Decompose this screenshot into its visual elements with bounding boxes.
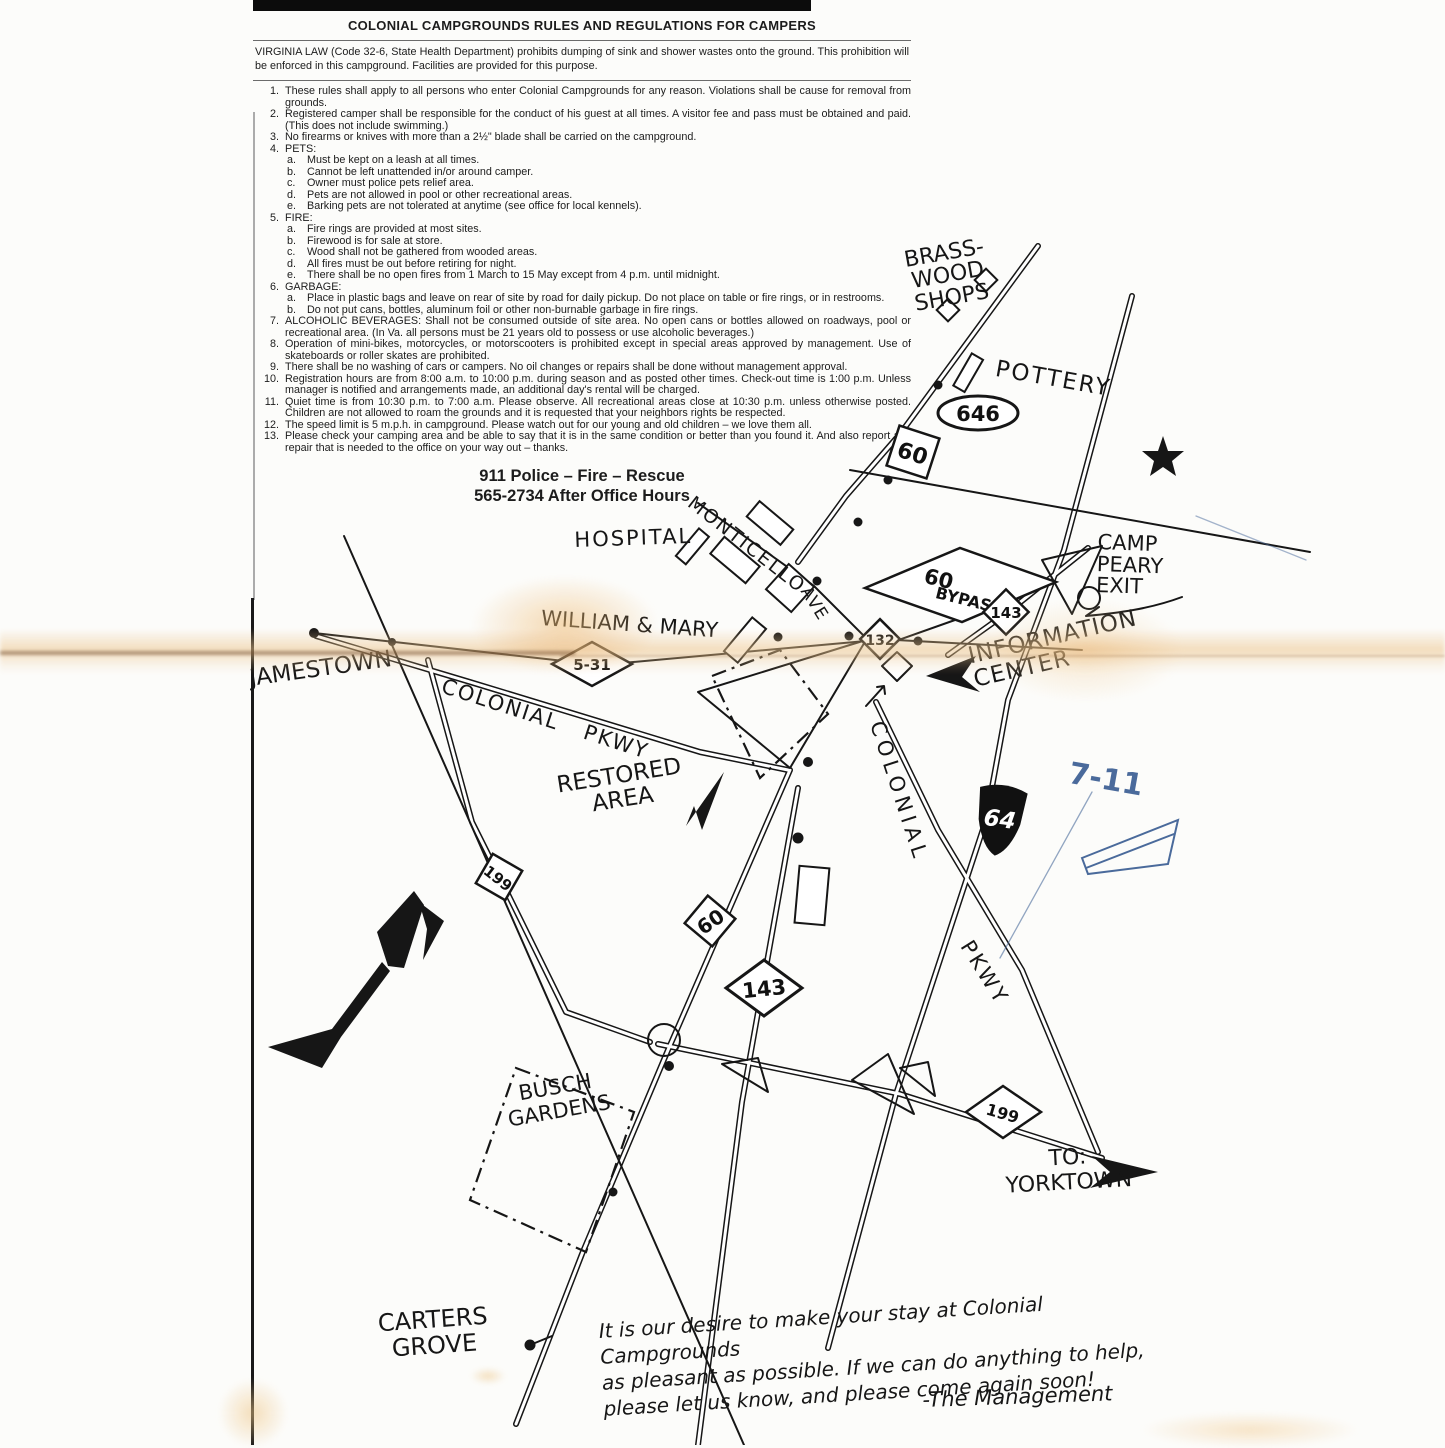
scanned-page: COLONIAL CAMPGROUNDS RULES AND REGULATIO… (0, 0, 1445, 1445)
north-arrow-notch-icon (419, 902, 444, 960)
svg-text:646: 646 (956, 402, 1000, 426)
pen-stray-line-2 (1196, 516, 1306, 560)
yorktown-arrow-icon (1090, 1156, 1158, 1188)
junction-dots (309, 381, 943, 1351)
hospital-building (676, 528, 709, 564)
busch-gardens-boundary (470, 1068, 634, 1252)
svg-text:5-31: 5-31 (573, 656, 611, 674)
hand-drawn-map: 60 646 60 BYPASS 143 132 5-31 60 143 199… (0, 0, 1445, 1445)
svg-text:64: 64 (982, 805, 1017, 835)
pen-scribble (1082, 820, 1178, 874)
roads-double-casing (316, 246, 1132, 1445)
svg-text:143: 143 (741, 975, 787, 1003)
restored-area-arrow-icon (686, 772, 724, 830)
roads-single (314, 470, 1310, 1445)
information-center-arrow-icon (926, 656, 980, 692)
star-icon (1142, 436, 1184, 476)
svg-text:143: 143 (990, 604, 1021, 622)
north-arrow-tail-icon (268, 962, 390, 1068)
svg-text:132: 132 (865, 633, 894, 649)
dash-dot-boundaries (470, 650, 828, 1252)
north-arrow-icon (377, 891, 424, 968)
